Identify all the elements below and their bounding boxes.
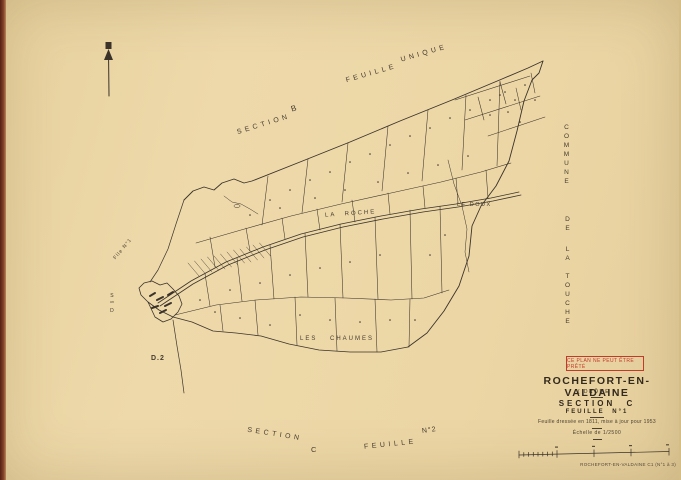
label-commune-de-la-touche-1: COMMUNE [563,124,570,187]
map-sheet-number: FEUILLE N°1 [522,409,672,415]
scale-note: Échelle de 1/2500 [522,430,672,436]
place-label-les-chaumes: LES CHAUMES [300,336,374,342]
divider [593,439,602,440]
revision-note: Feuille dressée en 1811, mise à jour pou… [522,419,672,425]
place-label-d2: D.2 [151,355,165,362]
divider [591,397,603,398]
label-commune-de-la-touche-2: DE [564,216,571,234]
map-departement: ( DRÔME ) [522,389,672,395]
map-section: SECTION C [522,399,672,408]
divider [590,417,604,418]
label-section-d-l1: S [110,293,113,299]
label-commune-de-la-touche-3: LA TOUCHE [564,246,571,327]
map-title: ROCHEFORT-EN-VALDAINE [522,375,672,399]
label-section-d-l2: on [110,300,114,304]
label-section-d: SonD [110,293,114,314]
archive-stamp: CE PLAN NE PEUT ÊTRE PRÊTÉ [566,356,644,371]
divider [592,428,602,429]
archive-reference: ROCHEFORT-EN-VALDAINE C1 (N°1 à 3) [560,462,676,467]
place-label-le-doux: LE DOUX [457,202,492,208]
label-bottom-section-letter: C [311,445,316,454]
north-arrow-icon [104,42,113,96]
label-section-d-l3: D [110,308,114,314]
scale-bar [519,444,669,458]
map-linework [0,0,681,480]
cadastral-map-sheet: SECTION B FEUILLE UNIQUE COMMUNE DE LA T… [0,0,681,480]
